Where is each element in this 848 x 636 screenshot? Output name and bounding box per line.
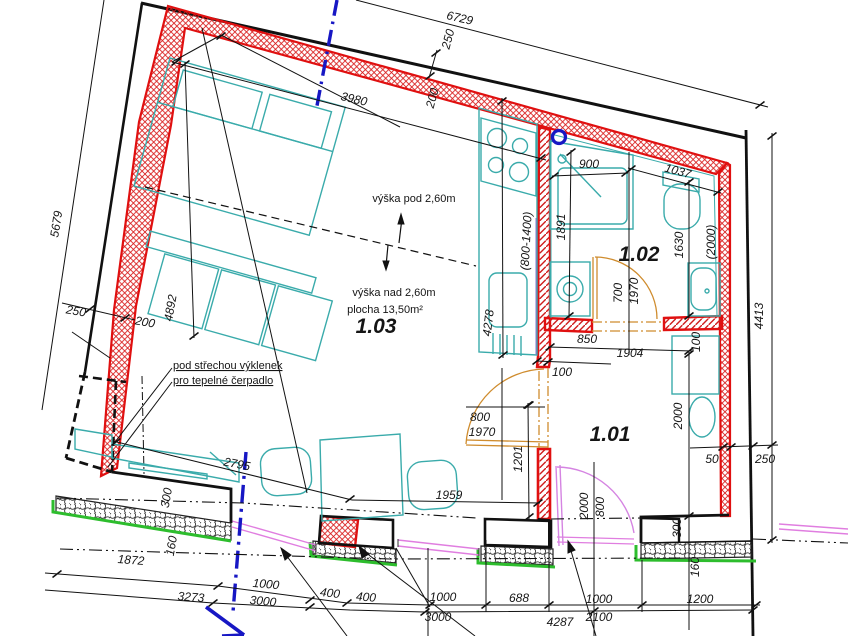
svg-text:3000: 3000 <box>249 593 277 609</box>
svg-text:1200: 1200 <box>687 592 714 606</box>
svg-text:4413: 4413 <box>752 302 766 329</box>
svg-text:1630: 1630 <box>672 231 686 258</box>
svg-text:700: 700 <box>611 283 625 303</box>
svg-text:400: 400 <box>356 589 377 604</box>
svg-text:688: 688 <box>509 591 529 605</box>
svg-text:2000: 2000 <box>577 492 591 520</box>
svg-text:400: 400 <box>319 585 341 601</box>
svg-text:3273: 3273 <box>177 589 205 605</box>
svg-text:(2000): (2000) <box>704 225 718 260</box>
svg-text:1.01: 1.01 <box>590 423 631 446</box>
svg-text:1000: 1000 <box>430 590 457 604</box>
svg-text:1970: 1970 <box>627 277 641 304</box>
svg-text:250: 250 <box>754 452 775 466</box>
svg-text:1959: 1959 <box>436 488 463 502</box>
svg-text:1.03: 1.03 <box>356 315 397 338</box>
svg-text:pod střechou výklenek: pod střechou výklenek <box>173 360 283 372</box>
svg-text:850: 850 <box>577 332 597 346</box>
svg-text:3000: 3000 <box>425 610 452 624</box>
svg-text:900: 900 <box>579 157 599 171</box>
svg-text:800: 800 <box>470 410 490 424</box>
svg-text:300: 300 <box>670 518 684 538</box>
svg-text:1000: 1000 <box>252 576 280 592</box>
svg-text:100: 100 <box>552 365 572 379</box>
svg-text:plocha 13,50m²: plocha 13,50m² <box>347 304 423 316</box>
svg-text:pro tepelné čerpadlo: pro tepelné čerpadlo <box>173 375 273 387</box>
svg-text:2000: 2000 <box>671 402 685 430</box>
svg-text:1.02: 1.02 <box>619 243 660 266</box>
svg-text:2100: 2100 <box>585 610 613 624</box>
svg-text:100: 100 <box>689 332 703 352</box>
svg-text:1872: 1872 <box>117 552 145 568</box>
svg-text:1891: 1891 <box>554 214 568 241</box>
svg-text:50: 50 <box>705 452 719 466</box>
svg-text:výška nad 2,60m: výška nad 2,60m <box>352 287 435 299</box>
svg-text:1904: 1904 <box>617 346 644 360</box>
svg-text:160: 160 <box>688 557 702 577</box>
svg-text:800: 800 <box>593 497 607 517</box>
svg-text:1000: 1000 <box>586 592 613 606</box>
svg-text:4287: 4287 <box>547 615 575 629</box>
svg-text:výška pod 2,60m: výška pod 2,60m <box>372 193 455 205</box>
svg-text:1970: 1970 <box>469 425 496 439</box>
svg-text:1201: 1201 <box>511 446 525 473</box>
